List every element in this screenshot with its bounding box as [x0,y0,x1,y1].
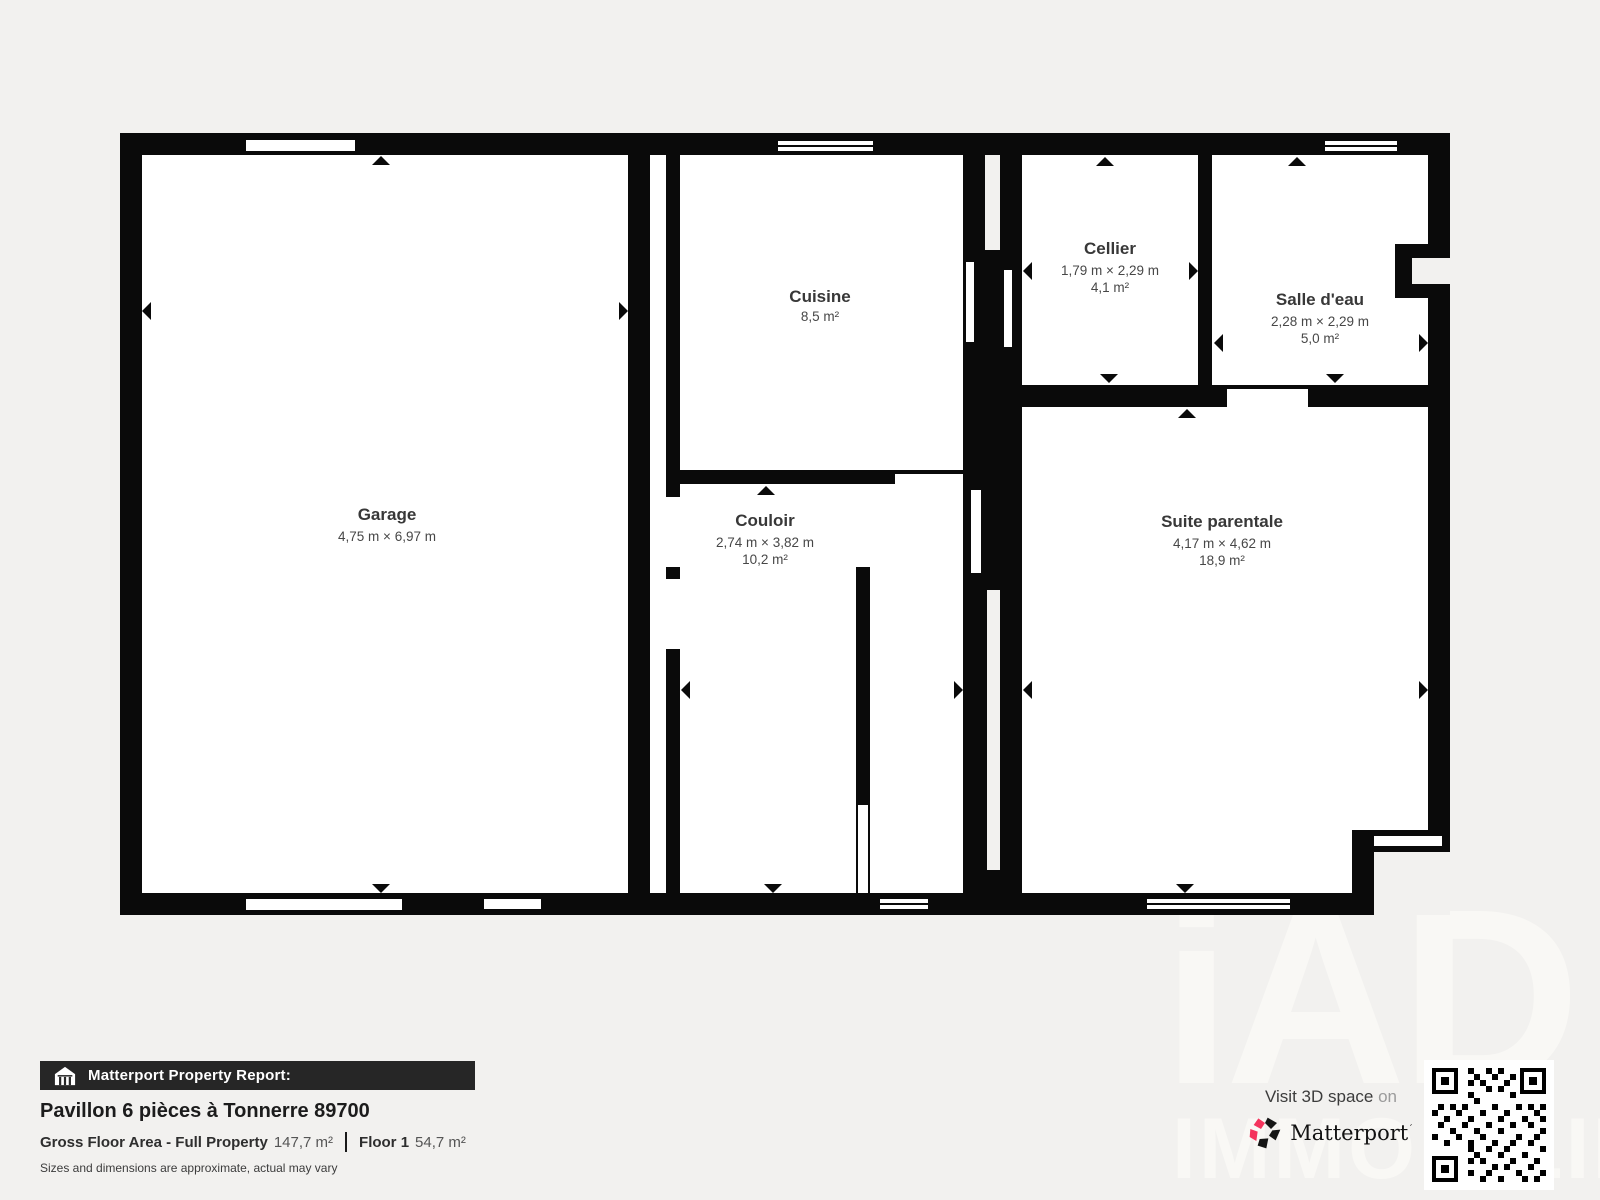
window-suite-step [1372,834,1444,848]
door-arrow-icon [1288,157,1306,166]
door-opening-cuisine-exterior [966,262,974,342]
wall-cellier-salle [1198,155,1212,385]
wall-couloir-partition [856,567,870,805]
window-garage-top [244,138,357,153]
building-gap-bottom [987,590,1000,870]
room-label-cuisine: Cuisine 8,5 m² [789,287,850,324]
room-label-couloir: Couloir 2,74 m × 3,82 m 10,2 m² [716,511,814,567]
door-arrow-icon [954,681,963,699]
report-stats: Gross Floor Area - Full Property 147,7 m… [40,1132,466,1152]
qr-code [1424,1060,1554,1190]
door-opening-garage-couloir-2 [666,579,680,649]
report-bar-label: Matterport Property Report: [88,1067,291,1084]
floor-plan: Garage 4,75 m × 6,97 m Cuisine 8,5 m² Ce… [0,0,1600,920]
house-icon [54,1065,76,1087]
room-area: 4,1 m² [1061,280,1159,295]
window-couloir-bottom [880,897,928,911]
report-header-bar: Matterport Property Report: [40,1061,475,1090]
room-dimensions: 2,28 m × 2,29 m [1271,314,1369,329]
property-title: Pavillon 6 pièces à Tonnerre 89700 [40,1100,370,1123]
room-label-garage: Garage 4,75 m × 6,97 m [338,505,436,544]
window-cuisine-top [778,139,873,153]
floorplan-report-page: iAD IMMOBILIER [0,0,1600,1200]
window-garage-bottom-1 [244,897,404,912]
door-arrow-icon [372,884,390,893]
door-arrow-icon [764,884,782,893]
wall-left [120,133,142,915]
door-opening-cellier [1004,270,1012,347]
wall-suite-top [1000,385,1450,407]
window-suite-bottom [1147,897,1290,911]
door-arrow-icon [1326,374,1344,383]
room-name: Salle d'eau [1271,290,1369,310]
room-label-salle-deau: Salle d'eau 2,28 m × 2,29 m 5,0 m² [1271,290,1369,346]
room-dimensions: 4,75 m × 6,97 m [338,529,436,544]
visit-3d-space-block: Visit 3D space on Matterport´ [1236,1087,1426,1149]
visit-3d-space-text: Visit 3D space on [1236,1087,1426,1107]
door-arrow-icon [142,302,151,320]
door-arrow-icon [1096,157,1114,166]
room-area: 10,2 m² [716,552,814,567]
floor-label: Floor 1 [359,1134,409,1151]
matterport-wordmark: Matterport´ [1290,1121,1412,1145]
room-name: Couloir [716,511,814,531]
wall-right-block-left [1000,133,1022,915]
door-arrow-icon [681,681,690,699]
room-dimensions: 2,74 m × 3,82 m [716,535,814,550]
door-arrow-icon [1178,409,1196,418]
window-salle-top [1325,139,1397,153]
wall-sliver [650,155,666,893]
door-opening-cuisine-couloir [895,474,963,484]
wall-garage-right [628,133,650,915]
room-dimensions: 4,17 m × 4,62 m [1161,536,1283,551]
door-opening-garage-couloir-1 [666,497,680,567]
matterport-logo: Matterport´ [1236,1117,1426,1149]
visit-text: Visit 3D space [1265,1087,1373,1106]
qr-finder-icon [1432,1156,1458,1182]
wall-partition-line-right [868,805,870,893]
door-arrow-icon [1023,262,1032,280]
door-arrow-icon [1189,262,1198,280]
room-name: Suite parentale [1161,512,1283,532]
door-arrow-icon [1176,884,1194,893]
suite-corner-notch [1374,852,1450,915]
wall-partition-line-left [856,805,858,893]
door-opening-salle-suite [1227,389,1308,407]
door-arrow-icon [619,302,628,320]
building-gap-top [985,155,1000,250]
room-name: Garage [338,505,436,525]
visit-on-text: on [1373,1087,1397,1106]
door-arrow-icon [372,156,390,165]
door-arrow-icon [1100,374,1118,383]
room-area: 18,9 m² [1161,553,1283,568]
qr-modules [1432,1068,1438,1074]
disclaimer-text: Sizes and dimensions are approximate, ac… [40,1161,337,1175]
stats-divider [345,1132,347,1152]
door-arrow-icon [757,486,775,495]
room-label-cellier: Cellier 1,79 m × 2,29 m 4,1 m² [1061,239,1159,295]
door-opening-couloir-suite [971,490,981,573]
room-label-suite-parentale: Suite parentale 4,17 m × 4,62 m 18,9 m² [1161,512,1283,568]
gfa-value: 147,7 m² [274,1134,333,1151]
room-dimensions: 1,79 m × 2,29 m [1061,263,1159,278]
wall-suite-step-vertical [1352,830,1374,915]
door-arrow-icon [1023,681,1032,699]
door-arrow-icon [1214,334,1223,352]
matterport-pinwheel-icon [1249,1117,1281,1149]
window-garage-bottom-2 [482,897,543,911]
gfa-label: Gross Floor Area - Full Property [40,1134,268,1151]
salle-notch-recess [1412,258,1450,284]
qr-finder-icon [1520,1068,1546,1094]
door-arrow-icon [1419,334,1428,352]
floor-value: 54,7 m² [415,1134,466,1151]
room-area: 5,0 m² [1271,331,1369,346]
room-name: Cuisine [789,287,850,307]
room-area: 8,5 m² [789,309,850,324]
room-name: Cellier [1061,239,1159,259]
door-arrow-icon [1419,681,1428,699]
